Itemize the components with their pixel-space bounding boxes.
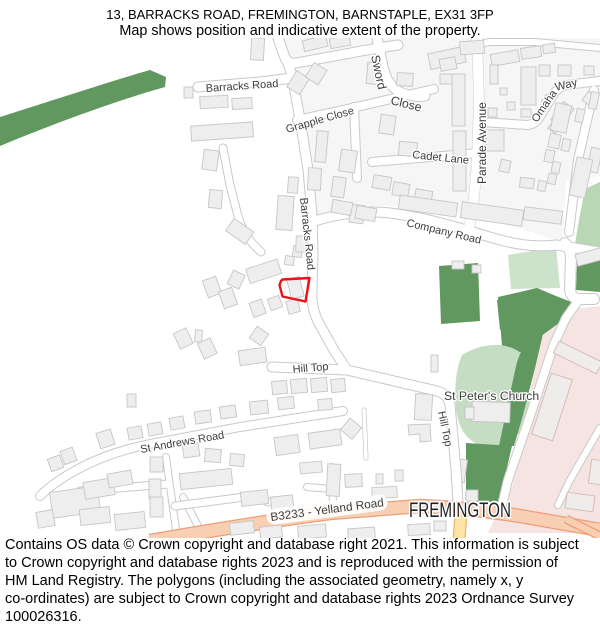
svg-text:St Peter's Church: St Peter's Church [444, 389, 539, 403]
svg-text:FREMINGTON: FREMINGTON [409, 499, 511, 522]
svg-text:Parade Avenue: Parade Avenue [475, 102, 489, 184]
